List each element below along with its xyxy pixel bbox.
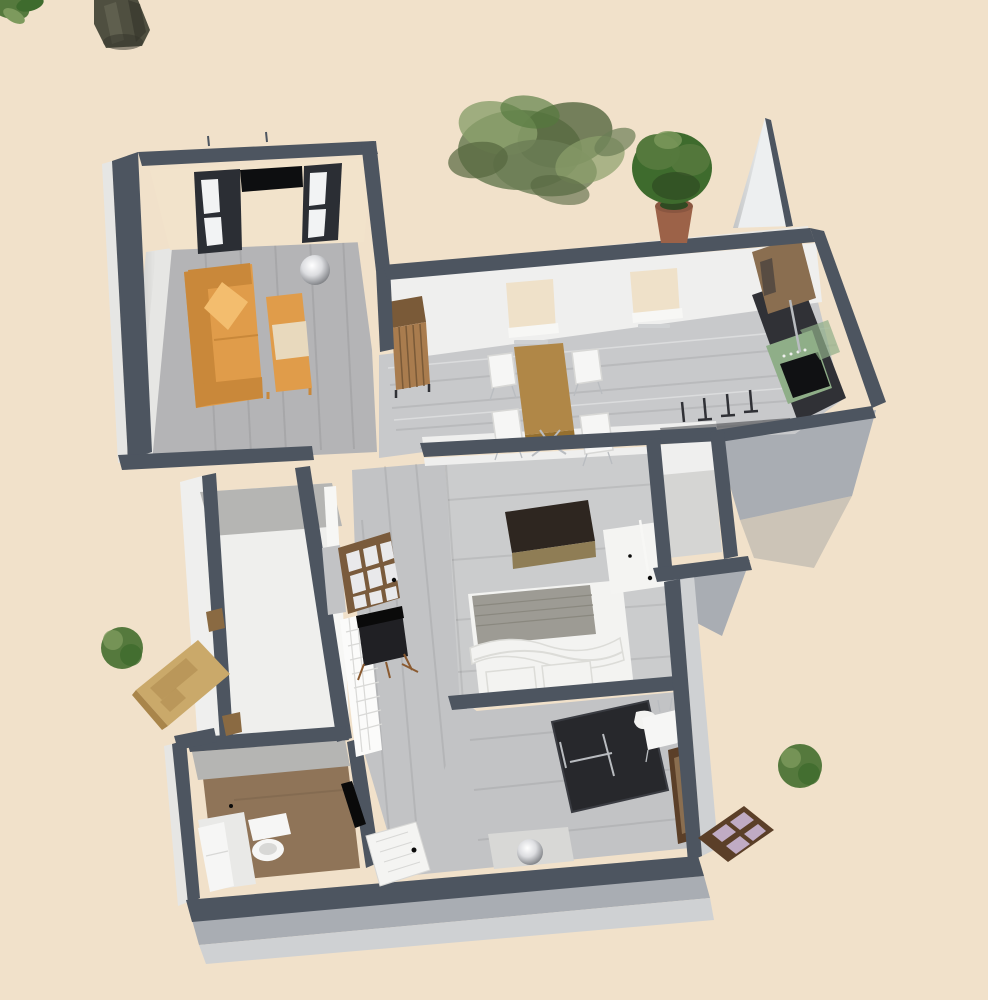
sofa[interactable] [184, 263, 263, 408]
living-window-right[interactable] [302, 163, 342, 243]
scene-canvas[interactable] [0, 0, 988, 1000]
small-bush-right[interactable] [778, 744, 822, 788]
living-window-left[interactable] [194, 169, 242, 254]
small-bush-left[interactable] [101, 627, 143, 669]
3d-floorplan-viewport[interactable] [0, 0, 988, 1000]
ceiling-lamp-sphere[interactable] [300, 255, 330, 285]
dresser[interactable] [505, 500, 596, 569]
